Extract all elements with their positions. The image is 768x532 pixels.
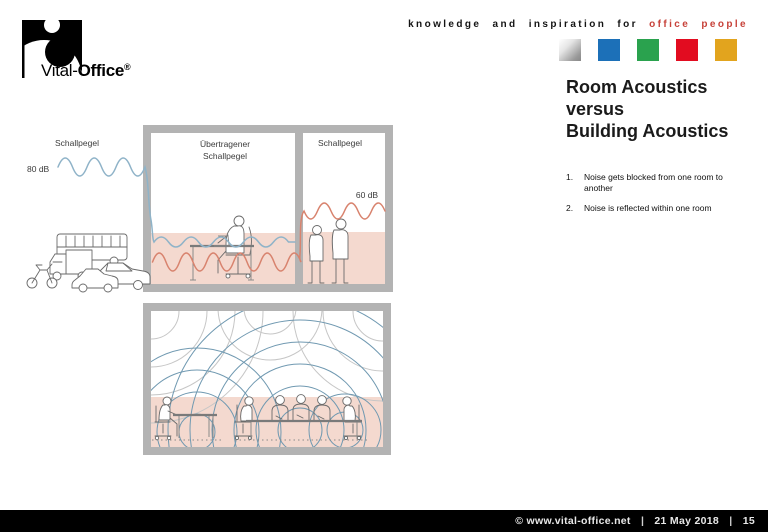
list-item: 1. Noise gets blocked from one room to a… <box>566 172 744 194</box>
title-line-2: versus <box>566 98 766 120</box>
footer-page-number: 15 <box>743 515 755 527</box>
vital-office-logo: Vital-Office® <box>21 20 171 82</box>
room2-level-label: 60 dB <box>356 190 379 200</box>
brand-wordmark: Vital-Office® <box>41 61 131 81</box>
list-item-number: 1. <box>566 172 584 194</box>
room1-label-line1: Übertragener <box>200 139 250 149</box>
swatch-green <box>637 39 659 61</box>
footer-url: www.vital-office.net <box>527 515 631 527</box>
outside-sound-label: Schallpegel <box>55 138 99 148</box>
list-item-text: Noise is reflected within one room <box>584 203 712 214</box>
swatch-gold <box>715 39 737 61</box>
brand-color-swatches <box>559 39 737 61</box>
footer-copyright: © <box>515 515 523 527</box>
footer-separator: | <box>641 515 644 527</box>
slide: Vital-Office® knowledge and inspiration … <box>0 0 768 532</box>
footer-bar: © www.vital-office.net | 21 May 2018 | 1… <box>0 510 768 532</box>
room2-label: Schallpegel <box>318 138 362 148</box>
swatch-blue <box>598 39 620 61</box>
tagline-red: office people <box>649 19 748 30</box>
noise-zone-room1 <box>151 233 295 284</box>
swatch-silver <box>559 39 581 61</box>
outside-level-label: 80 dB <box>27 164 50 174</box>
footer-date: 21 May 2018 <box>654 515 719 527</box>
title-line-1: Room Acoustics <box>566 76 766 98</box>
traffic-noise-illustration <box>27 234 150 292</box>
room-acoustics-diagram <box>140 300 396 460</box>
tagline: knowledge and inspiration for office peo… <box>408 19 748 30</box>
list-item: 2. Noise is reflected within one room <box>566 203 744 214</box>
swatch-red <box>676 39 698 61</box>
brand-bold: Office <box>78 61 124 80</box>
room1-label-line2: Schallpegel <box>203 151 247 161</box>
registered-mark: ® <box>124 62 131 72</box>
building-acoustics-diagram: Schallpegel 80 dB Übertragener Schallpeg… <box>20 120 395 295</box>
bullet-list: 1. Noise gets blocked from one room to a… <box>566 172 744 223</box>
list-item-text: Noise gets blocked from one room to anot… <box>584 172 744 194</box>
tagline-black: knowledge and inspiration for <box>408 19 638 30</box>
title-line-3: Building Acoustics <box>566 120 766 142</box>
footer-separator: | <box>729 515 732 527</box>
brand-regular: Vital- <box>41 61 78 80</box>
list-item-number: 2. <box>566 203 584 214</box>
page-title: Room Acoustics versus Building Acoustics <box>566 76 766 142</box>
